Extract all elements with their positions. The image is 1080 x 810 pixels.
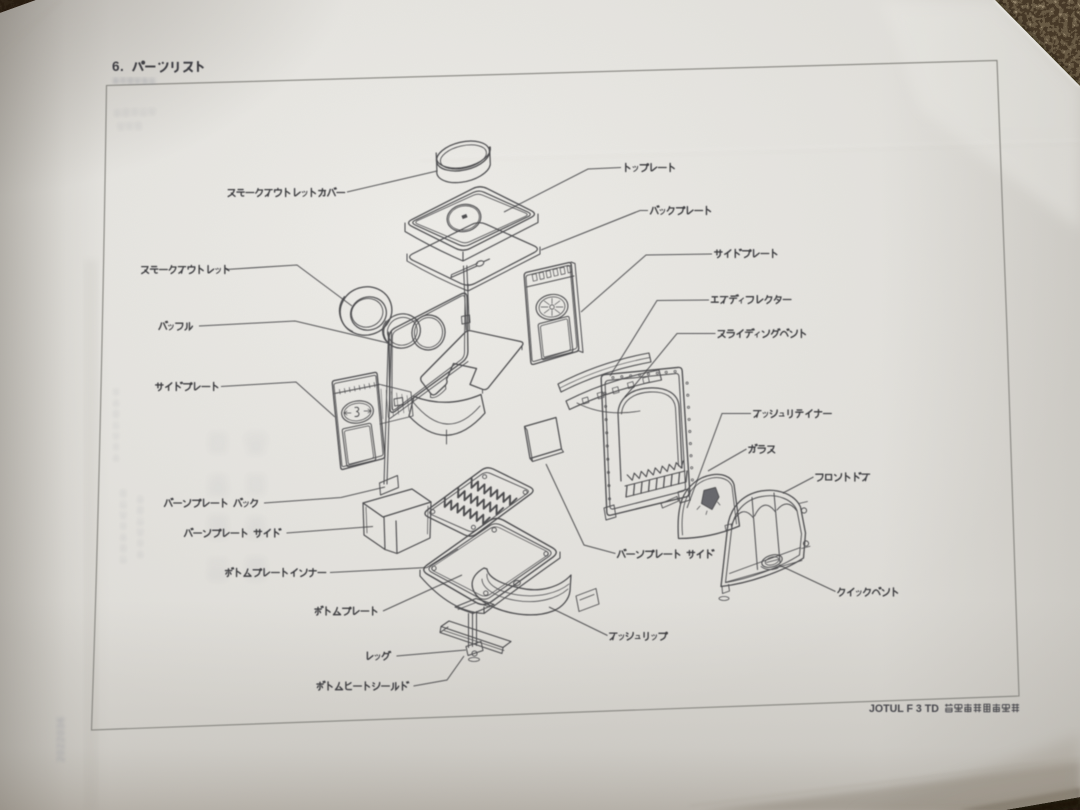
svg-text:6.: 6. [112,59,124,74]
svg-text:JOTUL F 3 TD: JOTUL F 3 TD [869,703,939,715]
